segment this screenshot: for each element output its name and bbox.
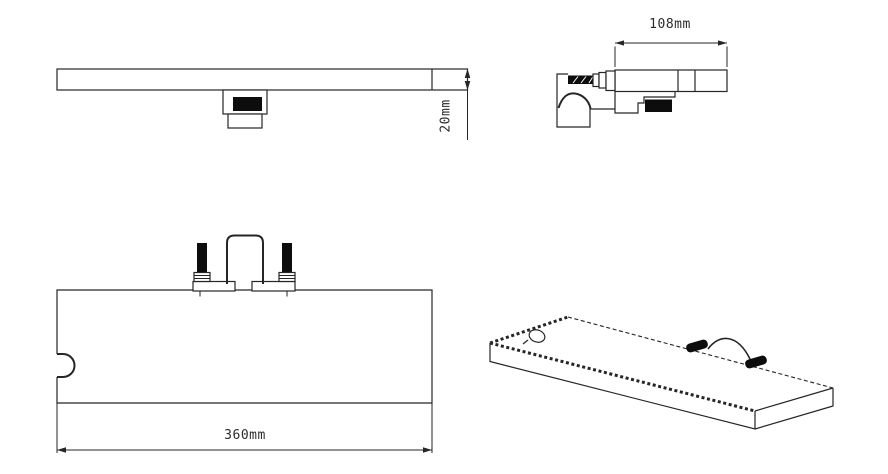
front-view: 20mm bbox=[57, 69, 470, 140]
arrow-left-icon bbox=[57, 447, 66, 452]
screw-right bbox=[282, 243, 292, 273]
bracket-hump bbox=[559, 93, 591, 108]
arrow-up-icon bbox=[465, 69, 471, 78]
rim-left-edge bbox=[490, 317, 568, 343]
right-end-face bbox=[755, 388, 833, 429]
bar-plan-outline bbox=[57, 290, 432, 403]
arrow-right-icon bbox=[423, 447, 432, 452]
dim-depth-label: 108mm bbox=[649, 17, 691, 32]
plan-view: 360mm bbox=[57, 236, 432, 454]
screw-left-washer bbox=[194, 273, 210, 282]
screw-collar bbox=[593, 74, 599, 87]
cable-notch bbox=[57, 354, 75, 377]
dim-thickness-label: 20mm bbox=[439, 99, 454, 132]
bar-side-outline bbox=[615, 70, 727, 92]
screw-washer bbox=[599, 73, 606, 89]
technical-drawing-page: 20mm 108mm bbox=[0, 0, 888, 474]
screw-right-washer bbox=[279, 273, 295, 282]
perspective-view bbox=[490, 317, 833, 429]
mount-foot-window bbox=[645, 100, 672, 113]
bracket-arc bbox=[708, 338, 750, 359]
screw-left bbox=[197, 243, 207, 273]
rim-front-edge bbox=[490, 343, 755, 411]
notch-tail bbox=[523, 340, 528, 344]
mount-plate-right bbox=[252, 282, 295, 292]
mount-stem bbox=[228, 114, 262, 128]
side-view: 108mm bbox=[557, 17, 727, 127]
top-right-edge bbox=[755, 388, 833, 411]
technical-drawing-canvas: 20mm 108mm bbox=[0, 0, 888, 474]
screw-nut bbox=[606, 71, 615, 91]
arrow-left-icon bbox=[615, 40, 624, 45]
arrow-right-icon bbox=[718, 40, 727, 45]
arrow-down-icon bbox=[465, 81, 471, 90]
u-bracket bbox=[227, 236, 263, 285]
light-bar-outline bbox=[57, 69, 468, 90]
cable-notch-3d bbox=[528, 328, 547, 344]
glass-back-edge bbox=[568, 317, 833, 388]
mount-window bbox=[233, 97, 262, 111]
mount-plate-left bbox=[193, 282, 235, 292]
dim-length-label: 360mm bbox=[224, 428, 266, 443]
